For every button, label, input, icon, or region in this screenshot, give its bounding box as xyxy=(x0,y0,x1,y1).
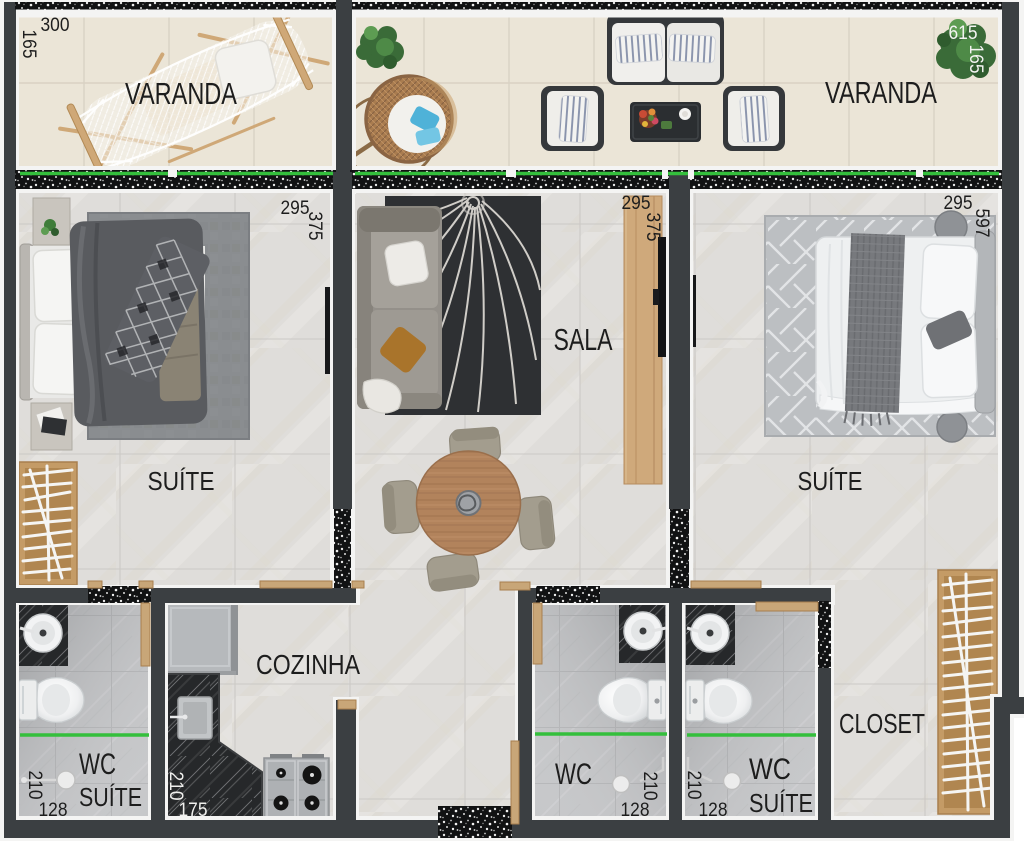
svg-text:175: 175 xyxy=(179,800,208,821)
svg-text:CLOSET: CLOSET xyxy=(839,708,925,739)
svg-text:295: 295 xyxy=(622,193,651,214)
svg-text:165: 165 xyxy=(965,45,986,74)
svg-text:WC: WC xyxy=(749,753,791,786)
svg-text:128: 128 xyxy=(699,800,728,821)
svg-text:375: 375 xyxy=(304,212,325,241)
svg-text:615: 615 xyxy=(949,23,978,44)
svg-text:128: 128 xyxy=(621,800,650,821)
svg-text:210: 210 xyxy=(683,771,704,800)
svg-text:210: 210 xyxy=(165,772,186,801)
svg-text:375: 375 xyxy=(642,213,663,242)
svg-text:SUÍTE: SUÍTE xyxy=(798,466,863,496)
svg-text:SUÍTE: SUÍTE xyxy=(749,788,813,818)
svg-text:210: 210 xyxy=(639,772,660,801)
svg-text:597: 597 xyxy=(971,209,992,238)
svg-text:210: 210 xyxy=(24,771,45,800)
svg-text:COZINHA: COZINHA xyxy=(256,649,360,680)
svg-text:VARANDA: VARANDA xyxy=(125,76,237,111)
svg-text:SALA: SALA xyxy=(554,322,613,357)
svg-text:300: 300 xyxy=(41,15,70,36)
svg-text:165: 165 xyxy=(18,30,39,59)
svg-text:SUÍTE: SUÍTE xyxy=(148,466,215,496)
svg-text:WC: WC xyxy=(79,748,116,781)
svg-text:SUÍTE: SUÍTE xyxy=(79,782,142,812)
svg-text:295: 295 xyxy=(944,193,973,214)
svg-text:128: 128 xyxy=(39,800,68,821)
svg-text:VARANDA: VARANDA xyxy=(825,75,937,110)
svg-text:WC: WC xyxy=(555,758,592,791)
